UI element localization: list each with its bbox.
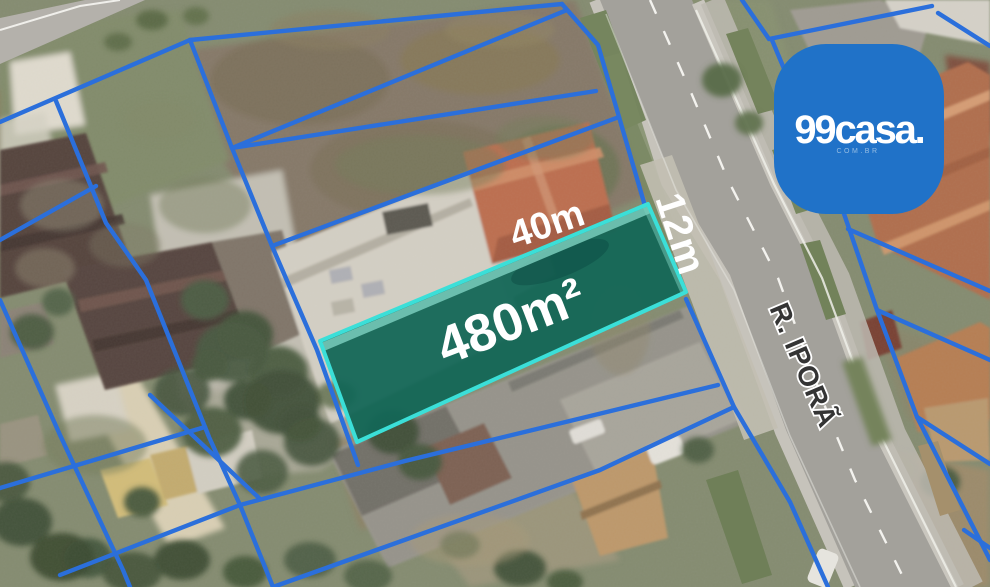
svg-text:99casa.: 99casa. (794, 108, 923, 152)
svg-text:COM.BR: COM.BR (837, 148, 880, 155)
